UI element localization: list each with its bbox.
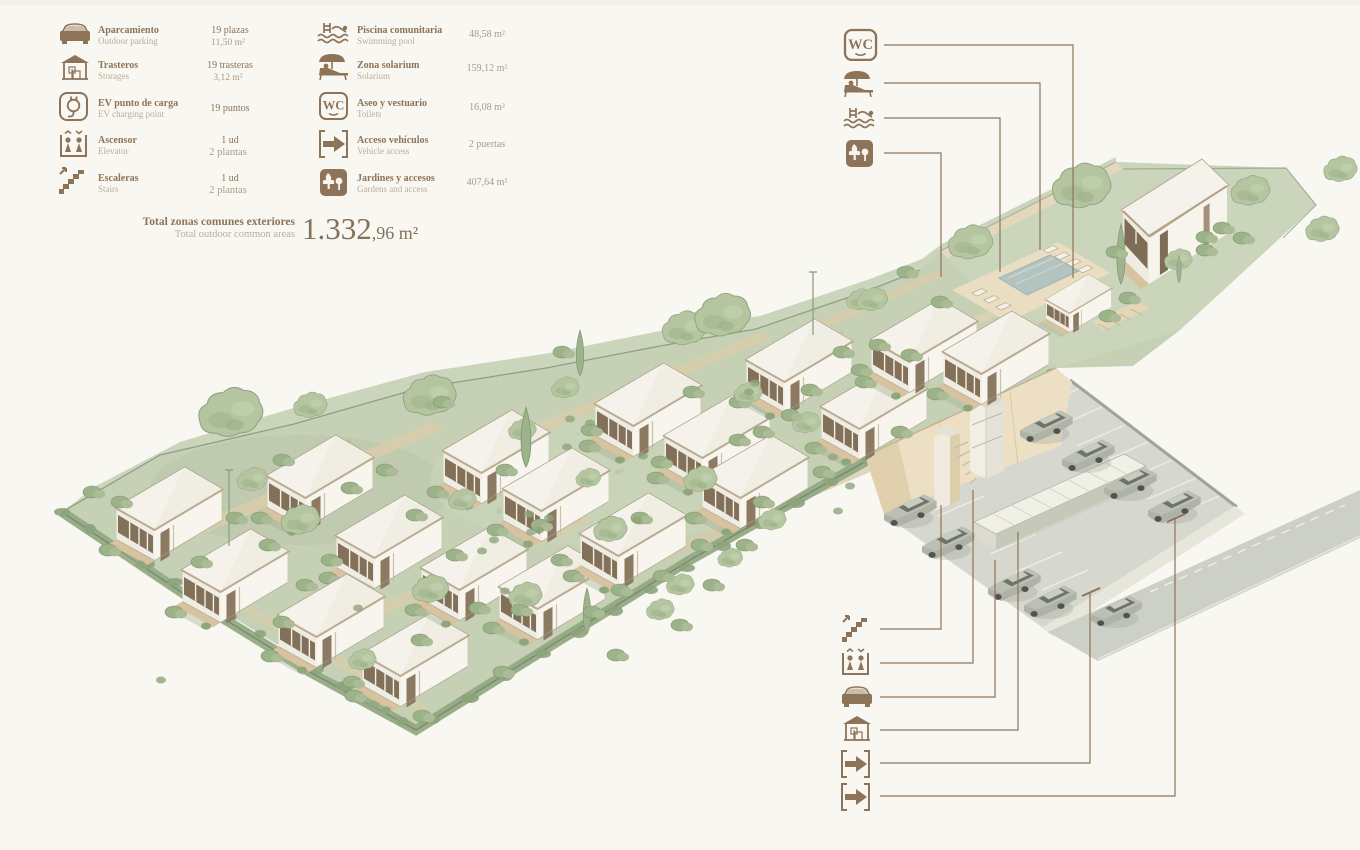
svg-text:2 puertas: 2 puertas xyxy=(469,139,505,150)
svg-text:Swimming pool: Swimming pool xyxy=(357,36,415,46)
svg-text:407,64 m²: 407,64 m² xyxy=(467,177,508,188)
svg-text:Aparcamiento: Aparcamiento xyxy=(98,25,159,36)
svg-text:1 ud: 1 ud xyxy=(221,135,239,146)
svg-text:16,08 m²: 16,08 m² xyxy=(469,102,505,113)
svg-text:Gardens and access: Gardens and access xyxy=(357,184,428,194)
svg-text:19 plazas: 19 plazas xyxy=(211,25,249,36)
svg-text:19 puntos: 19 puntos xyxy=(210,103,249,114)
svg-text:EV charging point: EV charging point xyxy=(98,109,165,119)
svg-text:Trasteros: Trasteros xyxy=(98,60,138,71)
svg-text:Total outdoor common areas: Total outdoor common areas xyxy=(175,229,295,240)
svg-text:Vehicle access: Vehicle access xyxy=(357,146,410,156)
svg-text:159,12 m²: 159,12 m² xyxy=(467,63,508,74)
svg-text:Elevator: Elevator xyxy=(98,146,129,156)
svg-text:EV punto de carga: EV punto de carga xyxy=(98,98,178,109)
svg-text:Stairs: Stairs xyxy=(98,184,119,194)
svg-text:2 plantas: 2 plantas xyxy=(209,147,247,158)
svg-text:Total zonas comunes exteriores: Total zonas comunes exteriores xyxy=(143,216,296,228)
svg-text:Aseo y vestuario: Aseo y vestuario xyxy=(357,98,427,109)
svg-text:Zona solarium: Zona solarium xyxy=(357,60,420,71)
svg-text:Storages: Storages xyxy=(98,71,129,81)
svg-text:Jardines y accesos: Jardines y accesos xyxy=(357,173,435,184)
svg-text:3,12 m²: 3,12 m² xyxy=(213,73,242,83)
svg-text:Solarium: Solarium xyxy=(357,71,390,81)
svg-text:Toilets: Toilets xyxy=(357,109,382,119)
svg-text:Acceso vehículos: Acceso vehículos xyxy=(357,135,428,146)
svg-text:2 plantas: 2 plantas xyxy=(209,185,247,196)
svg-text:Escaleras: Escaleras xyxy=(98,173,139,184)
svg-text:Outdoor parking: Outdoor parking xyxy=(98,36,158,46)
svg-text:Ascensor: Ascensor xyxy=(98,135,137,146)
svg-text:1 ud: 1 ud xyxy=(221,173,239,184)
svg-text:48,58 m²: 48,58 m² xyxy=(469,29,505,40)
svg-text:19 trasteras: 19 trasteras xyxy=(207,60,253,71)
svg-text:11,50 m²: 11,50 m² xyxy=(211,38,245,48)
svg-text:Piscina comunitaria: Piscina comunitaria xyxy=(357,25,442,36)
